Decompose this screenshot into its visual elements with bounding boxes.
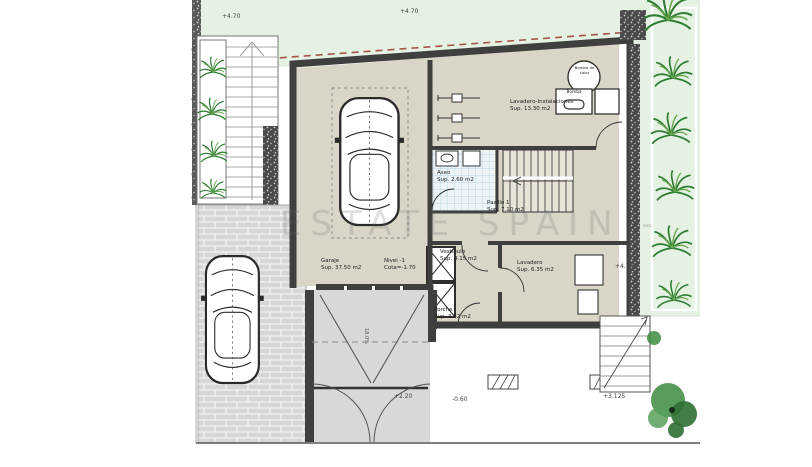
elevation-top-center: +4.70 bbox=[400, 8, 418, 15]
driveway-ramp bbox=[305, 290, 437, 442]
room-area: Sup. 6.35 m2 bbox=[517, 267, 554, 274]
room-area: Sup. 3.32 m2 bbox=[434, 314, 471, 321]
room-area: Sup. 2.60 m2 bbox=[437, 177, 474, 184]
room-label-nivel: Nivel -1 Cota=-1.70 bbox=[384, 258, 416, 272]
elevation-ramp: +2.20 bbox=[394, 393, 412, 400]
room-name: Nivel -1 bbox=[384, 258, 416, 265]
elevation-terrace: -0.60 bbox=[452, 396, 468, 403]
elevation-top-left: +4.70 bbox=[222, 13, 240, 20]
watermark: ESTATE SPAIN - bbox=[280, 204, 663, 244]
room-area: Cota=-1.70 bbox=[384, 265, 416, 272]
room-name: Vestíbulo bbox=[440, 249, 477, 256]
room-label-lavadero-instalaciones: Lavadero-Instalaciones Sup. 13.30 m2 bbox=[510, 99, 574, 113]
right-wall-hatch bbox=[629, 44, 640, 322]
room-name: Aseo bbox=[437, 170, 474, 177]
room-area: Sup. 13.30 m2 bbox=[510, 106, 574, 113]
garden-steps bbox=[600, 316, 650, 392]
room-name: Garaje bbox=[321, 258, 361, 265]
pump-label: Bomba bbox=[556, 90, 592, 95]
top-right-wall-hatch bbox=[620, 10, 646, 40]
room-label-aseo: Aseo Sup. 2.60 m2 bbox=[437, 170, 474, 184]
room-label-garaje: Garaje Sup. 37.50 m2 bbox=[321, 258, 361, 272]
room-label-porche: Porche Sup. 3.32 m2 bbox=[434, 307, 471, 321]
room-name: Lavadero-Instalaciones bbox=[510, 99, 574, 106]
elevation-garden-steps: +3.125 bbox=[603, 393, 625, 400]
elevation-right: +4.70 bbox=[615, 263, 633, 270]
room-label-lavadero: Lavadero Sup. 6.35 m2 bbox=[517, 260, 554, 274]
car-on-driveway bbox=[201, 256, 264, 383]
room-area: Sup. 37.50 m2 bbox=[321, 265, 361, 272]
room-name: Lavadero bbox=[517, 260, 554, 267]
stair-side-wall-hatch bbox=[263, 126, 278, 206]
heat-pump-label: Bomba de calor bbox=[571, 66, 598, 75]
floor-plan-page: Garaje Sup. 37.50 m2 Nivel -1 Cota=-1.70… bbox=[0, 0, 812, 467]
ramp-slope-label: 18.0% bbox=[363, 328, 369, 344]
room-name: Porche bbox=[434, 307, 471, 314]
tree-bottom-right bbox=[647, 331, 697, 438]
room-label-vestibulo: Vestíbulo Sup. 4.15 m2 bbox=[440, 249, 477, 263]
room-area: Sup. 4.15 m2 bbox=[440, 256, 477, 263]
